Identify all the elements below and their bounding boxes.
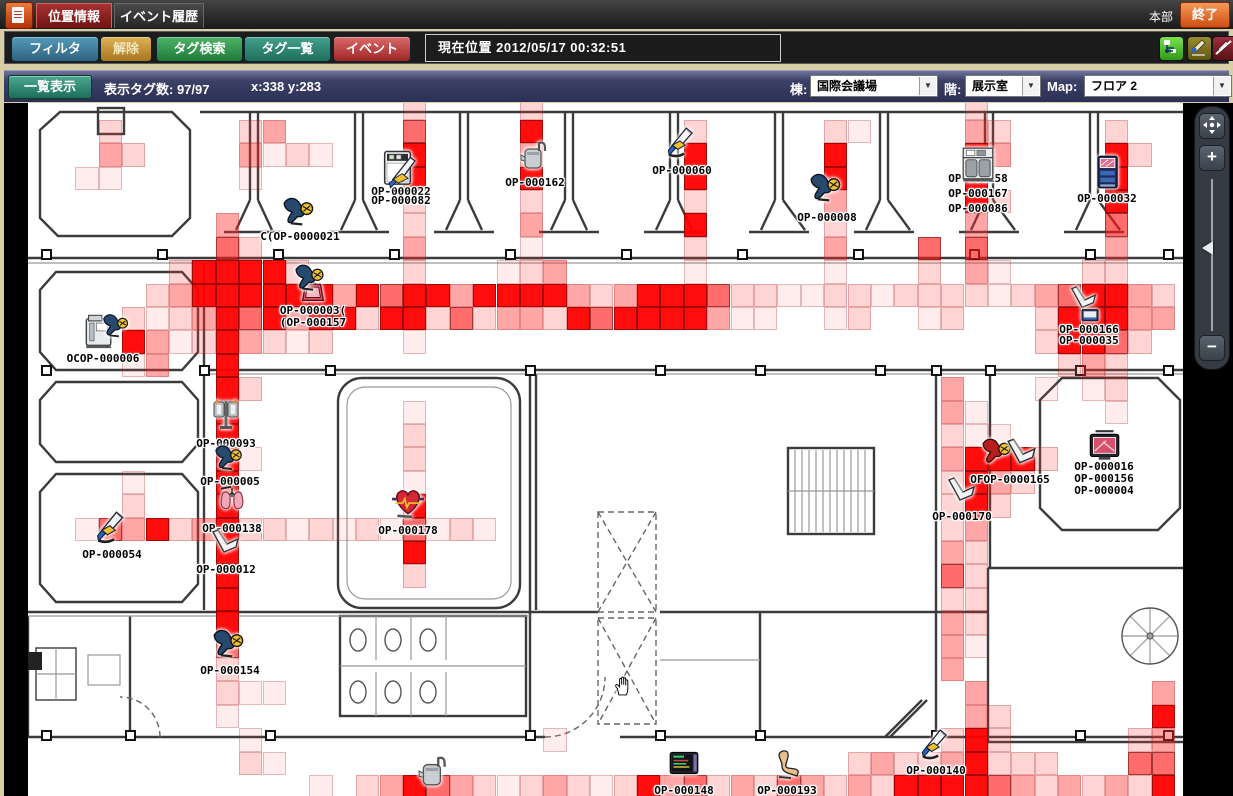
cursor-coords-label: x:338 y:283 bbox=[251, 79, 321, 94]
toolbar: フィルタ 解除 タグ検索 タグ一覧 イベント 現在位置 2012/05/17 0… bbox=[4, 31, 1229, 64]
lungs-tag-icon[interactable] bbox=[217, 484, 247, 514]
pen-disabled-icon[interactable] bbox=[1212, 36, 1233, 61]
tag-label: OP-000004 bbox=[1074, 484, 1134, 497]
tag-count-label: 表示タグ数: 97/97 bbox=[104, 79, 209, 98]
tag-label: OP-000170 bbox=[932, 510, 992, 523]
current-position-display: 現在位置 2012/05/17 00:32:51 bbox=[425, 34, 781, 62]
tag-label: OP-000193 bbox=[757, 784, 817, 796]
blade-tag-icon[interactable] bbox=[1005, 435, 1039, 469]
pen-tag-icon[interactable] bbox=[919, 728, 953, 762]
floor-dropdown-arrow-icon[interactable]: ▼ bbox=[1022, 77, 1039, 95]
screen-tag-icon[interactable] bbox=[1085, 428, 1123, 466]
tag-label: OP-000140 bbox=[906, 764, 966, 777]
zoom-in-button[interactable]: + bbox=[1199, 145, 1225, 171]
status-bar: 一覧表示 表示タグ数: 97/97 x:338 y:283 棟: 国際会議場 ▼… bbox=[4, 70, 1229, 102]
fall-tag-icon[interactable] bbox=[809, 170, 845, 206]
doubledoor-tag-icon[interactable] bbox=[210, 398, 242, 430]
tab-location-info-label: 位置情報 bbox=[48, 9, 100, 24]
pen-tag-icon[interactable] bbox=[94, 510, 130, 546]
hq-label: 本部 bbox=[1149, 8, 1173, 25]
map-dropdown-arrow-icon[interactable]: ▼ bbox=[1213, 77, 1230, 95]
vending-tag-icon[interactable] bbox=[1089, 154, 1125, 190]
tag-list-button[interactable]: タグ一覧 bbox=[244, 36, 331, 62]
floor-label: 階: bbox=[944, 79, 961, 98]
cabinet-tag-icon[interactable] bbox=[959, 145, 997, 183]
fall-tag-icon[interactable] bbox=[282, 194, 318, 230]
tag-label: OP-000178 bbox=[378, 524, 438, 537]
fall-tag-icon[interactable] bbox=[214, 442, 246, 474]
building-dropdown-arrow-icon[interactable]: ▼ bbox=[919, 77, 936, 95]
zoom-slider-track[interactable] bbox=[1211, 179, 1213, 331]
floor-select[interactable]: 展示室 ▼ bbox=[965, 75, 1041, 97]
tags-layer: OP-000022OP-000082OP-000162OP-000060OP-0… bbox=[28, 103, 1183, 796]
zoom-out-button[interactable]: − bbox=[1199, 335, 1225, 361]
kettle-tag-icon[interactable] bbox=[417, 754, 451, 788]
zoom-slider-handle[interactable] bbox=[1202, 241, 1213, 255]
hand-cursor-icon bbox=[612, 675, 634, 697]
list-display-button[interactable]: 一覧表示 bbox=[8, 75, 92, 99]
fall-tag-icon[interactable] bbox=[212, 626, 248, 662]
floor-select-value: 展示室 bbox=[972, 76, 1008, 96]
blade-tag-icon[interactable] bbox=[946, 474, 978, 506]
tag-label: OCOP-000006 bbox=[67, 352, 140, 365]
tag-label: OP-000162 bbox=[505, 176, 565, 189]
building-select-value: 国際会議場 bbox=[817, 76, 877, 96]
tag-label: OP-000032 bbox=[1077, 192, 1137, 205]
map-zoom-panel: + − bbox=[1194, 106, 1230, 370]
app-window: 位置情報 イベント履歴 本部 終了 フィルタ 解除 タグ検索 タグ一覧 イベント… bbox=[0, 0, 1233, 796]
tag-label: OP-000060 bbox=[652, 164, 712, 177]
building-label: 棟: bbox=[790, 79, 807, 98]
title-bar: 位置情報 イベント履歴 本部 終了 bbox=[0, 0, 1233, 29]
pen-settings-icon[interactable] bbox=[1187, 36, 1212, 61]
building-select[interactable]: 国際会議場 ▼ bbox=[810, 75, 938, 97]
tag-search-button[interactable]: タグ検索 bbox=[156, 36, 243, 62]
pan-control-button[interactable] bbox=[1199, 113, 1225, 139]
release-button[interactable]: 解除 bbox=[100, 36, 152, 62]
tag-label: OP-000012 bbox=[196, 563, 256, 576]
network-tree-icon[interactable] bbox=[1159, 36, 1184, 61]
tag-label: OP-000086 bbox=[948, 202, 1008, 215]
kettle-tag-icon[interactable] bbox=[519, 139, 551, 171]
tag-label: OP-000054 bbox=[82, 548, 142, 561]
fall-tag-icon[interactable] bbox=[102, 311, 132, 341]
tab-location-info[interactable]: 位置情報 bbox=[36, 3, 112, 28]
tag-label: OP-000154 bbox=[200, 664, 260, 677]
pen-tag-icon[interactable] bbox=[665, 126, 699, 160]
map-viewport[interactable]: OP-000022OP-000082OP-000162OP-000060OP-0… bbox=[28, 103, 1183, 796]
map-select-value: フロア 2 bbox=[1091, 76, 1137, 96]
event-button[interactable]: イベント bbox=[333, 36, 411, 62]
map-select[interactable]: フロア 2 ▼ bbox=[1084, 75, 1232, 97]
pump-tag-icon[interactable] bbox=[380, 148, 422, 190]
heart-tag-icon[interactable] bbox=[391, 485, 425, 519]
tag-label: OP-000008 bbox=[797, 211, 857, 224]
tag-label: OP-000035 bbox=[1059, 334, 1119, 347]
fall-tag-icon[interactable] bbox=[294, 261, 328, 295]
app-logo-icon[interactable] bbox=[5, 2, 33, 29]
monitorblue-tag-icon[interactable] bbox=[1077, 303, 1103, 329]
tag-label: OP-000148 bbox=[654, 784, 714, 796]
tag-label: OP-000167 bbox=[948, 187, 1008, 200]
leg-tag-icon[interactable] bbox=[771, 748, 803, 780]
filter-button[interactable]: フィルタ bbox=[11, 36, 99, 62]
tab-event-history[interactable]: イベント履歴 bbox=[114, 3, 204, 28]
tag-label: OFOP-0000165 bbox=[970, 473, 1049, 486]
monitordark-tag-icon[interactable] bbox=[667, 746, 701, 780]
tab-event-history-label: イベント履歴 bbox=[120, 9, 198, 24]
map-label: Map: bbox=[1047, 79, 1077, 94]
tag-label: C(OP-0000021 bbox=[260, 230, 339, 243]
tag-label: OP-000082 bbox=[371, 194, 431, 207]
blade-tag-icon[interactable] bbox=[210, 526, 242, 558]
exit-button[interactable]: 終了 bbox=[1180, 2, 1230, 28]
tag-label: (OP-000157 bbox=[280, 316, 346, 329]
document-glyph bbox=[12, 7, 24, 23]
